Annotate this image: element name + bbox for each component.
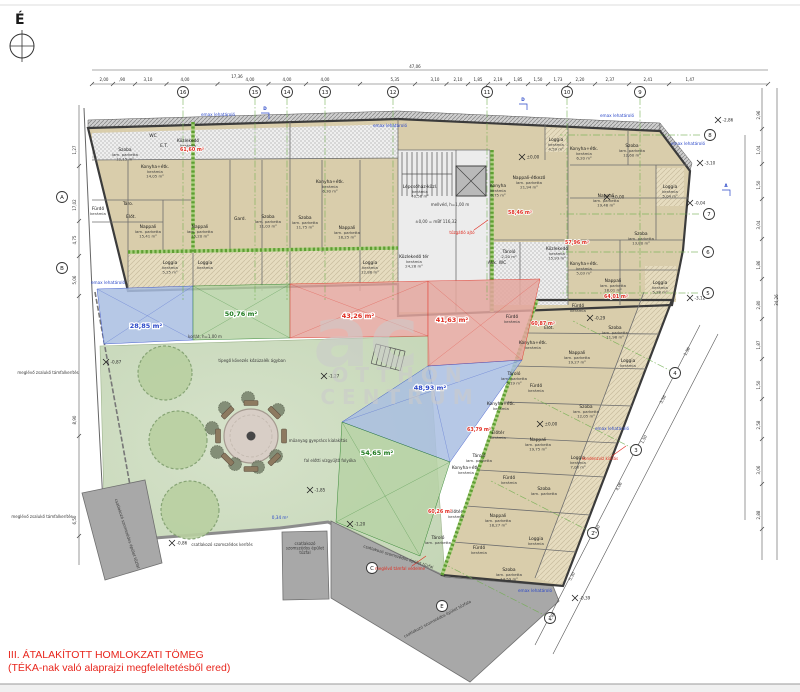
dimension-label: 2,41 [644,77,653,82]
dimension-label: 1,36 [682,346,691,357]
grid-bubble-label: 3 [634,448,637,454]
grid-bubble-label: B [60,266,64,272]
dimension-label: 1,85 [514,77,523,82]
level-marker: -0,39 [572,595,591,601]
dimension-label: 2,37 [606,77,615,82]
tree [161,481,219,539]
room-label: Táro. [122,200,133,207]
grid-bubble-label: E [440,604,444,610]
room-label: Fürdőkerámia [501,475,517,485]
dimension-label: 1,50 [534,77,543,82]
dimension-label: 1,04 [756,145,761,154]
level-value: -0,39 [580,596,591,601]
room-label: Fürdőkerámia [528,383,544,393]
apartment-area-label: 63,79 m² [467,427,491,433]
dimension-label: 6,50 [72,515,77,524]
blue-annotation: emax lehatároló [201,112,236,117]
dimension-label: 5,06 [72,275,77,284]
blue-annotation: D [263,106,267,111]
room-label: Tároló2,20 m² [501,248,517,259]
sheet-footer-band [0,684,800,692]
dimension-label: 2,88 [756,510,761,519]
level-value: -0,29 [595,316,606,321]
dimension-label: 3,10 [431,77,440,82]
dimension-label: 4,00 [246,77,255,82]
watermark-line2: CENTRUM [320,385,479,409]
room-label: Loggiakerámia5,25 m² [162,260,178,275]
gray-annotation: csatlakozó szomszédos kerítés [191,542,252,547]
terrace-zone [97,286,193,344]
gray-annotation: tipegő kövezés kőzúzalék ágyban [218,358,286,363]
room-label: Konyhakerámia6,75 m² [490,183,507,198]
grid-bubble-label: 11 [484,90,491,96]
room-label: Loggiakerámia5,04 m² [662,184,678,199]
blue-annotation: emax lehatároló [595,426,630,431]
drawing-sheet: É [0,0,800,692]
dimension-label: 3,56 [658,394,667,405]
floor-plan-svg: É [0,0,800,692]
dimension-total: 17,36 [231,74,243,79]
apartment-area-label: 60,87 m² [531,321,555,327]
level-marker: -2,86 [715,117,734,123]
blue-annotation: emax lehatároló [671,141,706,146]
gray-annotation: korlát, h=1,00 m [188,334,222,339]
grid-bubble-label: 9 [638,90,642,96]
room-label: Fürdőkerámia [90,206,106,216]
room-label: Fürdőkerámia [471,545,487,555]
room-label: Loggiakerámia5,28 m² [652,280,668,295]
red-annotation: meglévő támfal védelme [375,566,426,571]
red-annotation: tűzgátló ajtó [449,230,475,235]
patio-bench [282,429,287,443]
room-label: Akk. WC [488,260,506,266]
north-arrow: É [10,11,34,62]
level-value: -0,87 [111,360,122,365]
room-label: Fürdőkerámia [570,303,586,313]
level-value: -0,04 [695,201,706,206]
grid-bubble-label: 6 [706,250,710,256]
dimension-total: 47,06 [409,64,421,69]
level-cross-icon [697,160,703,166]
patio-bench [216,429,221,443]
grid-bubble-label: 13 [322,90,329,96]
zone-area-label: 50,76 m² [225,310,258,318]
blue-annotation: A [724,183,728,188]
bench-shape [244,401,258,406]
grid-bubble-label: 4 [673,371,677,377]
dimension-label: 1,50 [756,180,761,189]
dimension-label: 5,35 [391,77,400,82]
gray-annotation: meglévő zsalukő támfalkerítés [11,514,72,519]
grid-bubble-label: 8 [708,133,712,139]
bench-shape [216,429,221,443]
apartment-area-label: 64,01 m² [604,294,628,300]
level-value: -1,85 [315,488,326,493]
dimension-label: 2,19 [494,77,503,82]
level-value: -2,86 [723,118,734,123]
elevator [456,166,486,196]
room-label: Előtérkerámia [490,429,506,440]
room-label: Gard. [234,216,246,222]
blue-annotation: emax lehatároló [373,123,408,128]
room-label: E.T. [160,143,168,149]
level-value: ±0,00 [527,155,540,160]
dimension-label: 17,02 [72,199,77,211]
title-line1: III. ÁTALAKÍTOTT HOMLOKZATI TÖMEG [8,648,204,661]
room-label: Loggiakerámia12,86 m² [361,260,379,275]
dimension-label: 2,96 [756,110,761,119]
patio-bench [244,401,258,406]
blue-annotation: D [521,97,525,102]
zone-area-label: 41,63 m² [436,316,469,324]
grid-bubble-label: 15 [252,90,259,96]
tree [138,346,192,400]
level-cross-icon [169,540,175,546]
dimension-label: 4,00 [181,77,190,82]
dimension-label: 3,06 [756,465,761,474]
gray-annotation: ±0,00 = mBf 116,32 [415,219,457,224]
grid-bubble-label: 16 [180,90,187,96]
gray-annotation: meglévő zsalukő támfalkerítés [17,370,78,375]
dimension-label: 4,00 [283,77,292,82]
grid-bubble-label: 14 [284,90,291,96]
level-cross-icon [572,595,578,601]
title-block: III. ÁTALAKÍTOTT HOMLOKZATI TÖMEG (TÉKA-… [8,648,230,674]
blue-annotation: emax lehatároló [518,588,553,593]
dimension-label: 1,87 [756,340,761,349]
room-label: Loggiakerámia [528,536,544,546]
gray-annotation: fal előtti vízgyűjtő folyóka [304,458,356,463]
section-marker-line [722,190,730,196]
dimension-label: 2,00 [100,77,109,82]
room-label: WC [149,133,156,139]
dimension-label: 3,10 [144,77,153,82]
blue-annotation: emax lehatároló [91,280,126,285]
patio-bench [244,467,258,472]
dimension-label: 1,50 [756,380,761,389]
tree [149,411,207,469]
dimension-label: 1,27 [72,145,77,154]
title-line2: (TÉKA-nak való alaprajzi megfeleltetésbő… [8,661,230,674]
north-label: É [15,11,25,28]
level-cross-icon [687,295,693,301]
zone-area-label: 54,65 m² [361,449,394,457]
dimension-label: 4,06 [614,481,623,492]
blue-annotation: emax lehatároló [600,113,635,118]
room-label: Előt. [126,214,136,220]
gray-annotation: műanyag gyeprács kialakítás [289,438,348,443]
apartment-area-label: 60,26 m² [428,509,452,515]
dimension-label: 4,00 [321,77,330,82]
level-value: ±0,00 [545,422,558,427]
red-annotation: kondenzvíz kiállás [582,456,618,461]
room-label: Loggiakerámia [620,358,636,368]
apartment-area-label: 58,46 m² [508,210,532,216]
dimension-label: 2,58 [756,420,761,429]
dimension-total: 34,26 [774,294,779,306]
dimension-label: 2,80 [756,300,761,309]
room-label: Fürdőkerámia [504,314,520,324]
dimension-label: 8,90 [72,415,77,424]
gray-annotation: mellvéd, h=1,00 m [431,202,470,207]
grid-bubble-label: 12 [390,90,397,96]
dimension-label: 2,20 [576,77,585,82]
level-value: -1,20 [355,522,366,527]
level-marker: -0,04 [687,200,706,206]
grid-bubble-label: C [370,566,374,572]
dimension-label: 2,10 [454,77,463,82]
section-marker-line [519,104,527,110]
watermark-line1: OTTHON [331,363,468,387]
dimension-label: 3,04 [756,220,761,229]
bench-shape [244,467,258,472]
level-value: -3,10 [705,161,716,166]
dimension-label: 1,50 [639,434,648,445]
level-marker: -3,12 [687,295,706,301]
level-marker: -3,10 [697,160,716,166]
bench-shape [282,429,287,443]
dimension-label: 1,86 [756,260,761,269]
apartment-area-label: 61,60 m² [180,147,204,153]
level-cross-icon [715,117,721,123]
room-label: Loggiakerámia4,59 m² [548,137,564,152]
level-marker: -0,86 [169,540,188,546]
level-value: -3,12 [695,296,706,301]
grid-bubble-label: 7 [707,212,710,218]
dimension-label: 1,47 [686,77,695,82]
apartment-area-label: 57,96 m² [565,240,589,246]
dimension-label: 1,50 [592,524,601,535]
level-value: -0,86 [177,541,188,546]
zone-area-label: 28,85 m² [130,322,163,330]
dimension-label: 4,75 [72,235,77,244]
grid-bubble-label: A [60,195,64,201]
dimension-label: ,90 [119,77,126,82]
dimension-label: 1,73 [554,77,563,82]
room-label: Loggiakerámia [197,260,213,270]
dimension-label: 1,85 [474,77,483,82]
blue-annotation: 0,34 m² [272,515,289,520]
grid-bubble-label: 5 [706,291,709,297]
grid-bubble-label: 10 [564,90,571,96]
